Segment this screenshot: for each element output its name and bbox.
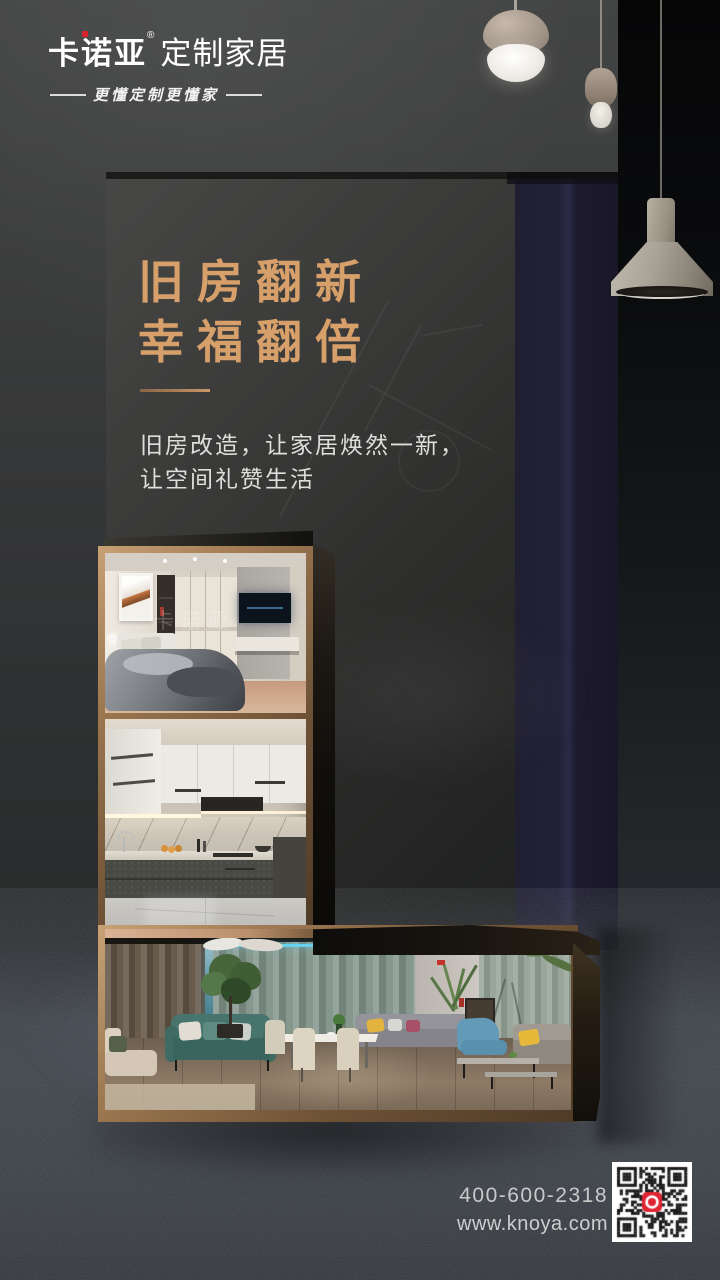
brand-name: 卡诺亚 <box>48 36 147 71</box>
handle <box>175 789 201 792</box>
handle <box>225 868 255 870</box>
bottle <box>197 839 200 852</box>
photo-block-vertical: 卡诺亚 <box>98 538 335 938</box>
brand-tagline: 更懂定制更懂家 <box>50 84 262 105</box>
white-pillow <box>178 1021 201 1041</box>
dining-chair <box>265 1020 285 1054</box>
headline: 旧房翻新 幸福翻倍 <box>138 252 374 372</box>
tagline-rule-right <box>226 94 262 96</box>
throw-blanket <box>167 667 239 697</box>
spotlight <box>163 559 167 563</box>
panel-top-edge <box>106 172 618 179</box>
fruit <box>175 845 182 852</box>
poster: 卡诺亚®定制家居 更懂定制更懂家 旧房翻新 幸福翻倍 旧房改造，让家居焕然一新，… <box>0 0 720 1280</box>
tv-screen <box>239 593 291 623</box>
led-strip <box>105 814 201 818</box>
lamp-glass <box>590 102 612 128</box>
living-room-photo <box>105 938 571 1110</box>
website-url: www.knoya.com <box>400 1213 608 1236</box>
registered-mark: ® <box>147 30 154 41</box>
photo-block-horizontal <box>98 925 600 1125</box>
spotlight <box>223 559 227 563</box>
wall-art <box>119 573 153 621</box>
lamp-neck <box>647 198 675 246</box>
lamp-rim-highlight <box>620 288 704 299</box>
bronze-frame: 卡诺亚 <box>98 546 313 938</box>
red-square-dot-icon <box>82 31 88 37</box>
description: 旧房改造，让家居焕然一新， 让空间礼赞生活 <box>140 428 465 496</box>
tagline-rule-left <box>50 94 86 96</box>
teal-sofa-seat <box>173 1038 269 1060</box>
red-sign <box>459 998 464 1007</box>
headline-line2: 幸福翻倍 <box>138 312 374 372</box>
contact-block: 400-600-2318 www.knoya.com <box>400 1184 608 1236</box>
block-side-face <box>573 943 600 1121</box>
fruit <box>168 846 175 853</box>
pillow <box>141 636 162 649</box>
upper-cabinets-right <box>161 745 306 803</box>
handle <box>111 753 153 760</box>
lit-frame-strip <box>105 929 313 938</box>
plant-pot <box>217 1024 243 1038</box>
headline-line1: 旧房翻新 <box>138 252 374 312</box>
coffee-table <box>457 1058 539 1064</box>
fruit <box>161 845 168 852</box>
handle <box>255 781 285 784</box>
pink-pillow <box>406 1020 420 1032</box>
qr-code-canvas <box>612 1162 692 1242</box>
gold-divider <box>140 389 210 392</box>
rug <box>105 1084 255 1110</box>
stove <box>213 853 253 857</box>
white-pillow <box>388 1019 402 1031</box>
handle <box>113 779 155 786</box>
yellow-pillow <box>518 1029 540 1047</box>
upper-cabinets-left <box>105 729 161 815</box>
phone-number: 400-600-2318 <box>400 1184 608 1208</box>
coffee-table-low <box>485 1072 557 1077</box>
kitchen-photo <box>105 719 306 930</box>
dining-chair <box>293 1028 315 1070</box>
qr-code <box>612 1162 692 1242</box>
yellow-pillow <box>366 1018 384 1033</box>
block-side-face <box>313 544 335 938</box>
spotlight <box>193 557 197 561</box>
description-line1: 旧房改造，让家居焕然一新， <box>140 428 465 462</box>
brand-logo: 卡诺亚®定制家居 <box>48 28 288 73</box>
faucet-arc <box>117 831 135 842</box>
bedroom-photo: 卡诺亚 <box>105 553 306 713</box>
tv-cabinet <box>235 637 299 651</box>
table-plant <box>509 1052 517 1058</box>
navy-curtain-band <box>515 178 618 950</box>
photo-watermark: 卡诺亚 <box>153 605 234 635</box>
plate <box>327 1032 335 1035</box>
tall-cabinet <box>273 837 306 898</box>
bottle <box>203 841 206 852</box>
green-pillow <box>109 1036 127 1052</box>
lamp-cord <box>600 0 602 74</box>
lamp-cord <box>660 0 662 200</box>
led-strip <box>201 811 306 814</box>
block-side-shadow <box>598 928 678 1143</box>
tagline-text: 更懂定制更懂家 <box>93 84 219 105</box>
description-line2: 让空间礼赞生活 <box>140 462 465 496</box>
brand-suffix: 定制家居 <box>160 36 288 71</box>
wall-panel <box>290 563 306 685</box>
dining-chair <box>337 1028 359 1070</box>
cream-sofa-seat <box>105 1050 157 1076</box>
